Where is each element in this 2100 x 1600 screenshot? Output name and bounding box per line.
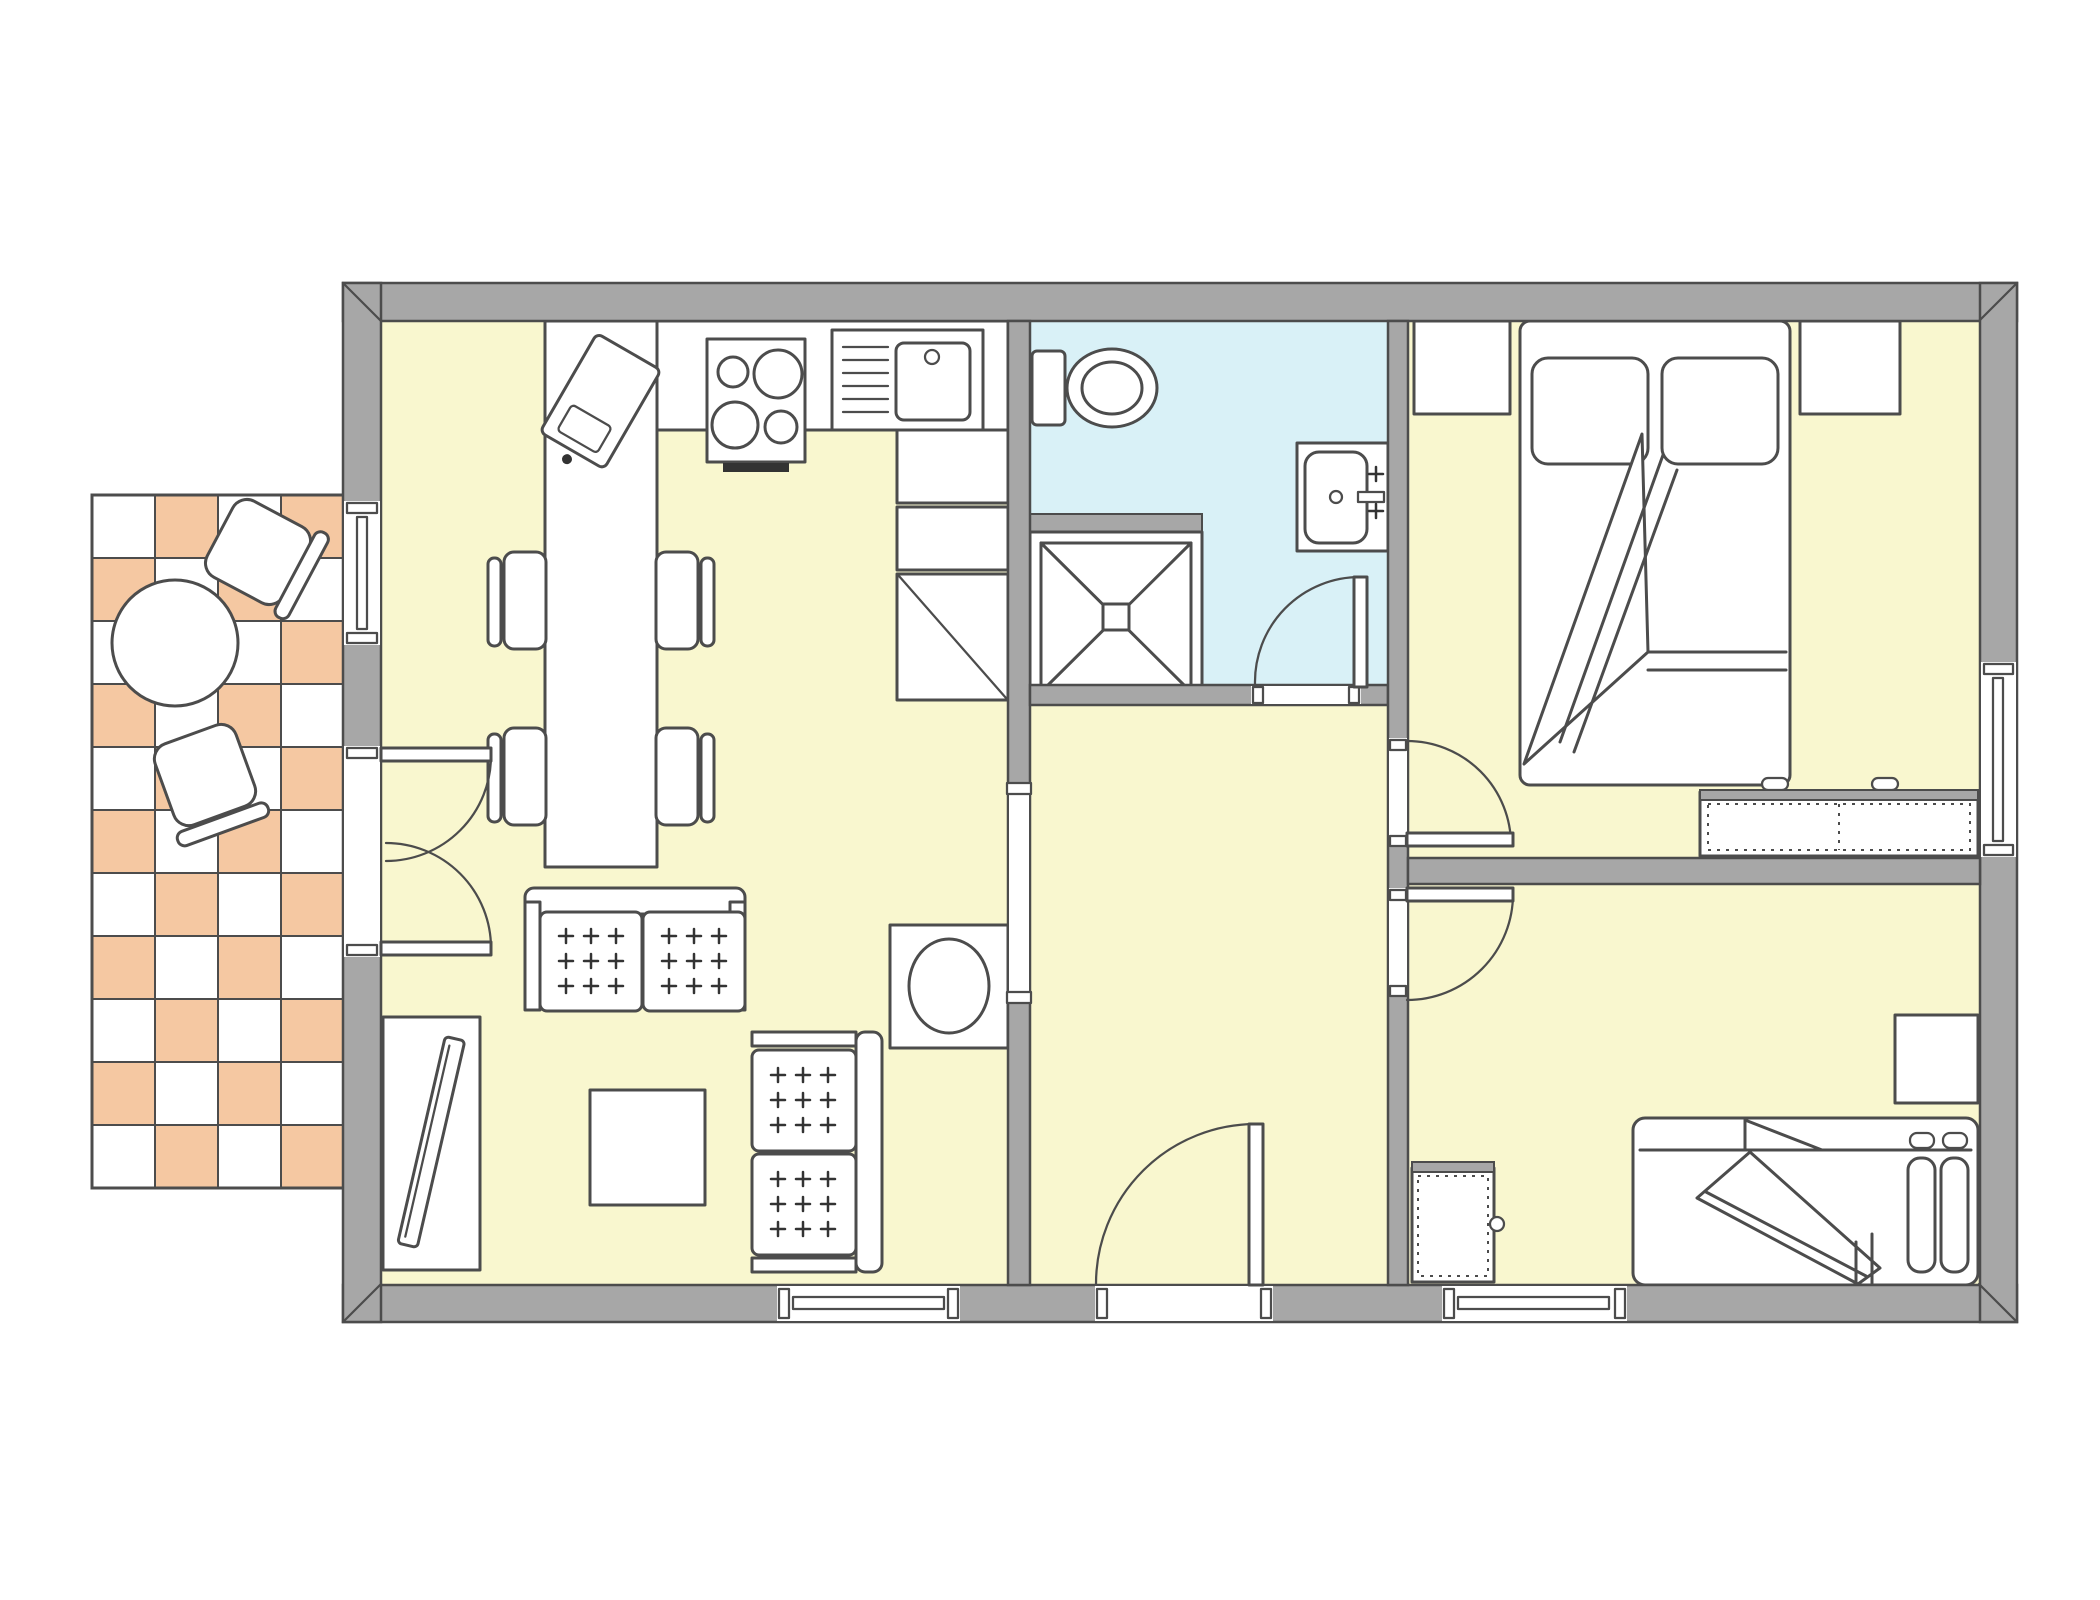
window-glass [793, 1297, 944, 1309]
door-cap [1349, 687, 1359, 703]
pillow-left [1532, 358, 1648, 464]
sofa-arm-left [525, 902, 540, 1010]
nightstand-right [1800, 321, 1900, 414]
door-cap [1390, 986, 1406, 996]
opening-cap [1007, 992, 1031, 1003]
sofa-loveseat-vertical [752, 1032, 882, 1272]
dresser-handle [1762, 778, 1788, 790]
window-glass [1458, 1297, 1609, 1309]
patio [92, 489, 344, 1188]
window-cap [1984, 664, 2013, 674]
pillow-tab [1910, 1133, 1934, 1148]
sofa-arm-bottom [752, 1258, 856, 1272]
door-leaf [1407, 888, 1513, 901]
base-cabinet-1 [897, 430, 1008, 503]
door-leaf [381, 942, 491, 955]
nightstand-left [1414, 321, 1510, 414]
door-opening [1251, 686, 1361, 704]
pillow-vertical [1908, 1158, 1935, 1272]
desk-table [1895, 1015, 1978, 1103]
window-cap [948, 1289, 958, 1318]
chair-seat [504, 552, 546, 649]
window-cap [1615, 1289, 1625, 1318]
shower-drain [1103, 604, 1129, 630]
cabinet-body [1412, 1168, 1494, 1282]
sink-basin [896, 343, 970, 420]
window-cap [347, 633, 377, 643]
stove [707, 339, 805, 472]
cabinet-top-band [1412, 1162, 1494, 1172]
sofa-arm-top [752, 1032, 856, 1046]
dining-chair-2 [488, 728, 546, 825]
window-cap [779, 1289, 789, 1318]
door-opening [344, 746, 380, 957]
pillow-tab [1943, 1133, 1967, 1148]
kitchen-sink [832, 330, 983, 430]
door-cap [1390, 836, 1406, 846]
patio-table [112, 580, 238, 706]
door-cap [1390, 740, 1406, 750]
window-living-bottom [777, 1286, 960, 1321]
shower [1030, 514, 1202, 703]
sink-tap [1358, 492, 1384, 502]
cabinet-knob [1490, 1217, 1504, 1231]
window-right-wall [1981, 662, 2016, 857]
window-glass [357, 517, 367, 629]
window-bedroom2-bottom [1442, 1286, 1627, 1321]
outer-wall-top [343, 283, 2017, 321]
window-left-wall [344, 501, 380, 645]
floor-plan-page [0, 0, 2100, 1600]
door-cap [1253, 687, 1263, 703]
sofa-two-seat [525, 888, 745, 1011]
chair-seat [504, 728, 546, 825]
door-opening [1389, 888, 1407, 996]
pillow-vertical [1941, 1158, 1968, 1272]
window-cap [1444, 1289, 1454, 1318]
chair-back [488, 558, 501, 646]
floor-plan [0, 0, 2100, 1600]
sofa-back [525, 888, 745, 914]
door-leaf [381, 748, 491, 761]
dresser-handle [1872, 778, 1898, 790]
coffee-table [590, 1090, 705, 1205]
dresser [1700, 778, 1978, 856]
dining-chair-3 [656, 552, 714, 649]
toilet-tank [1032, 351, 1065, 425]
door-leaf [1354, 577, 1367, 687]
sofa-back [856, 1032, 882, 1272]
chair-seat [656, 728, 698, 825]
door-opening [1095, 1286, 1273, 1321]
door-leaf [1407, 833, 1513, 846]
base-cabinet-2 [897, 507, 1008, 570]
dining-chair-4 [656, 728, 714, 825]
shower-wall-band [1030, 514, 1202, 532]
chair-back [701, 734, 714, 822]
hall-cased-opening [1007, 783, 1031, 1003]
window-glass [1993, 678, 2003, 841]
door-leaf [1249, 1124, 1263, 1285]
window-cap [1984, 845, 2013, 855]
oven-handle [723, 463, 789, 472]
wall-bedroom-divider [1408, 858, 1980, 884]
pillow-right [1662, 358, 1778, 464]
door-cap [1097, 1289, 1107, 1318]
dresser-top-band [1700, 790, 1978, 800]
door-opening [1389, 738, 1407, 846]
chair-seat [656, 552, 698, 649]
washing-machine [890, 925, 1008, 1048]
chair-back [701, 558, 714, 646]
opening-cap [1007, 783, 1031, 794]
opening [1009, 783, 1029, 1003]
door-cap [1261, 1289, 1271, 1318]
door-cap [347, 748, 377, 758]
dining-chair-1 [488, 552, 546, 649]
bathroom-sink [1297, 443, 1388, 551]
door-cap [1390, 890, 1406, 900]
toilet [1032, 349, 1157, 427]
window-cap [347, 503, 377, 513]
shoe-cabinet [1412, 1162, 1504, 1282]
door-cap [347, 945, 377, 955]
